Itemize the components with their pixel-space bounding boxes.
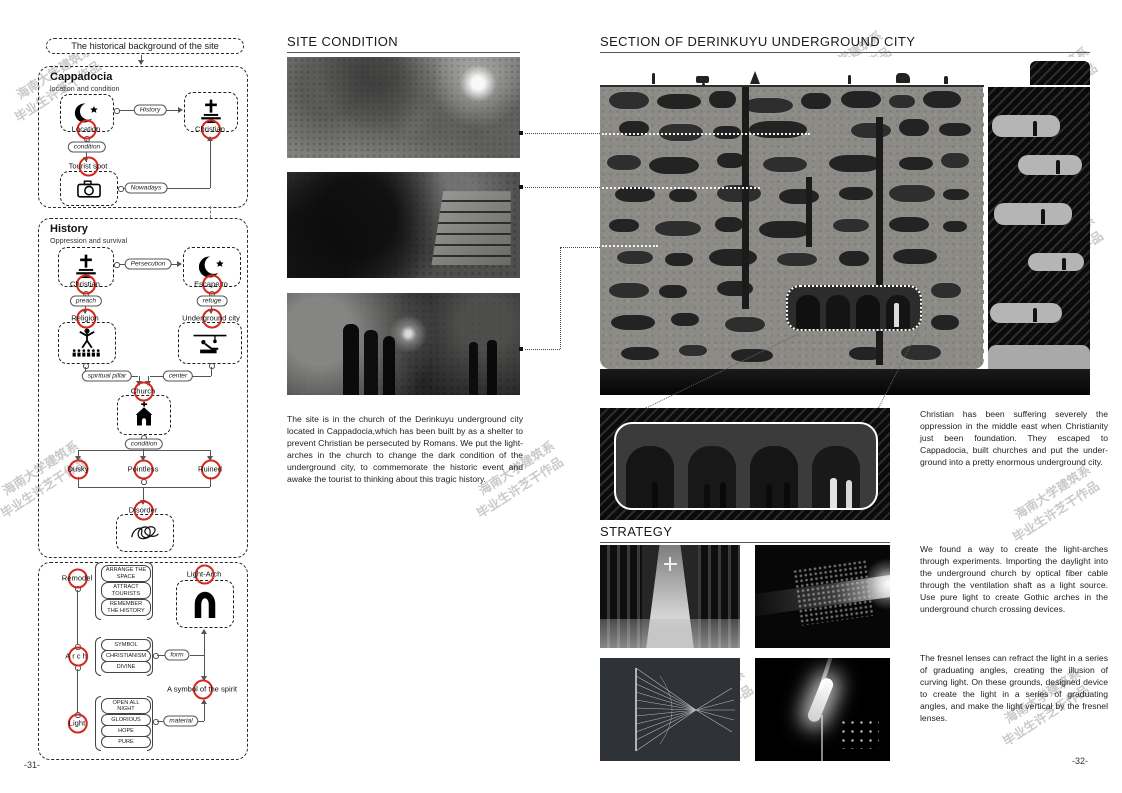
carved-chamber: [888, 216, 930, 233]
carved-chamber: [832, 218, 870, 233]
node-remodel: Remodel: [62, 574, 92, 583]
arrowhead-icon: [177, 261, 185, 267]
decor: [80, 259, 92, 262]
decor: [696, 688, 732, 710]
arch-icon: [190, 588, 220, 620]
decor: [696, 76, 709, 83]
site-photo-3: [287, 293, 520, 395]
connector-line: [211, 367, 212, 376]
connector-origin-dot: [141, 479, 147, 485]
strategy-photo-lightbeam: [755, 545, 890, 648]
decor: [636, 692, 696, 710]
node-location: Location: [72, 125, 101, 134]
decor: [213, 340, 217, 344]
church-icon: [130, 401, 158, 429]
decor: [1033, 308, 1037, 322]
water: [600, 369, 1090, 395]
group-heading: Cappadocia: [50, 71, 112, 83]
node-h-christian: Christian: [70, 280, 100, 289]
decor: [1056, 160, 1060, 174]
decor: [80, 332, 94, 348]
connector-line: [602, 245, 658, 247]
connector-line: [78, 450, 210, 451]
decor: [97, 349, 100, 352]
edge-refuge: refuge: [197, 296, 228, 307]
carved-chamber: [668, 188, 698, 203]
carved-chamber: [608, 218, 640, 233]
decor: [696, 700, 734, 710]
decor: [944, 76, 948, 84]
decor: [198, 595, 212, 618]
carved-chamber: [648, 156, 700, 175]
node-symbol-of-spirit: A symbol of the spirit: [167, 685, 237, 694]
strategy-photo-church: [600, 545, 740, 648]
decor: [894, 303, 899, 327]
edge-history: History: [134, 105, 167, 116]
connector-line: [77, 669, 78, 713]
edge-persecution: Persecution: [125, 259, 172, 270]
refraction-fan-lines: [600, 658, 740, 761]
cave-stairs: [431, 191, 510, 265]
decor: [636, 710, 696, 751]
decor: [830, 478, 837, 508]
decor: [73, 349, 100, 356]
carved-chamber: [850, 122, 892, 139]
decor: [696, 710, 732, 732]
decor: [792, 559, 873, 625]
decor: [702, 83, 705, 86]
strategy-paragraph-2: The fresnel lenses can refract the light…: [920, 652, 1108, 724]
connector-line: [78, 487, 210, 488]
carved-chamber: [656, 93, 702, 110]
site-photo-1: [287, 57, 520, 158]
decor: [73, 353, 76, 357]
tourist-silhouette: [364, 330, 378, 395]
decor: [652, 482, 658, 508]
connector-line: [190, 655, 204, 656]
edge-spiritual-pillar: spiritual pillar: [82, 371, 132, 382]
decor: [92, 353, 95, 357]
decor: [652, 73, 655, 84]
carved-chamber: [606, 154, 642, 171]
carved-chamber: [940, 152, 970, 169]
carved-chamber: [938, 122, 972, 137]
list-item: PURE: [101, 736, 151, 748]
connector-line: [204, 630, 205, 680]
edge-condition: condition: [68, 142, 106, 153]
site-photo-2: [287, 172, 520, 278]
edge-condition-2: condition: [125, 439, 163, 450]
watermark: 海南大学建筑系毕业生许芝干作品: [1011, 461, 1104, 539]
edge-center: center: [163, 371, 193, 382]
carved-chamber: [708, 248, 758, 267]
decor: [205, 344, 218, 349]
carved-chamber: [838, 186, 874, 201]
decor: [636, 710, 696, 716]
list-item: ARRANGE THE SPACE: [101, 565, 151, 582]
connector-line: [210, 137, 211, 188]
carved-chamber: [776, 252, 818, 267]
decor: [826, 295, 850, 329]
node-ruined: Ruined: [198, 465, 222, 474]
decor: [84, 181, 91, 184]
node-light-arch-box: [176, 580, 234, 628]
site-condition-title: SITE CONDITION: [287, 34, 520, 53]
carved-chamber: [942, 188, 970, 201]
strategy-photo-device: [755, 658, 890, 761]
tourist-silhouette: [383, 336, 395, 395]
carved-chamber: [840, 90, 882, 109]
carved-chamber: [724, 316, 766, 333]
carved-chamber: [888, 94, 916, 109]
carved-chamber: [888, 184, 936, 203]
decor: [626, 446, 674, 508]
decor: [85, 186, 93, 194]
surface-structure: [1030, 61, 1090, 85]
decor: [704, 484, 710, 508]
decor: [141, 403, 147, 405]
decor: [82, 353, 85, 357]
highlighted-chamber: [786, 285, 922, 331]
decor: [846, 480, 852, 508]
decor: [636, 668, 735, 751]
section-title: SECTION OF DERINKUYU UNDERGROUND CITY: [600, 34, 1090, 53]
node-underground-city: Underground city: [182, 314, 240, 323]
decor: [636, 684, 696, 710]
decor: [796, 295, 820, 329]
arrowhead-icon: [178, 107, 186, 113]
portfolio-spread: 海南大学建筑系毕业生许芝干作品 海南大学建筑系毕业生许芝干作品 海南大学建筑系毕…: [0, 0, 1122, 793]
carved-chamber: [778, 188, 820, 205]
list-item: REMEMBER THE HISTORY: [101, 599, 151, 616]
strategy-diagram-fresnel: [600, 658, 740, 761]
hatched-zone-base: [988, 345, 1090, 369]
group-subheading: location and condition: [50, 84, 120, 93]
decor: [84, 328, 89, 333]
connector-line: [210, 206, 211, 218]
carved-chamber: [892, 248, 938, 265]
connector-line: [602, 187, 760, 189]
carved-chamber: [930, 314, 960, 331]
decor: [79, 269, 93, 271]
carved-chamber: [678, 344, 708, 357]
decor: [720, 482, 726, 508]
connector-line: [525, 187, 600, 188]
camera-icon: [76, 179, 102, 199]
decor: [142, 418, 146, 425]
decor: [136, 407, 153, 415]
decor: [87, 349, 90, 352]
decor: [766, 484, 772, 508]
list-item: DIVINE: [101, 661, 151, 673]
ventilation-shaft: [742, 87, 749, 309]
decor: [1033, 121, 1037, 136]
leader-anchor-dot: [519, 185, 523, 189]
decor: [132, 527, 159, 539]
node-light: Light: [69, 719, 85, 728]
decor: [688, 446, 736, 508]
node-christian: Christian: [195, 125, 225, 134]
list-item: ATTRACT TOURISTS: [101, 582, 151, 599]
carved-chamber: [898, 118, 930, 137]
list-item: OPEN ALL NIGHT: [101, 698, 151, 714]
edge-preach: preach: [70, 296, 102, 307]
edge-material: material: [163, 716, 198, 727]
decor: [73, 349, 76, 352]
decor: 海南大学建筑系: [1012, 463, 1093, 522]
leader-anchor-dot: [519, 347, 523, 351]
church-detail-drawing: [600, 408, 890, 520]
carved-chamber: [714, 216, 744, 233]
scribble-icon: [125, 520, 165, 546]
carved-chamber: [898, 156, 934, 171]
node-tourist-spot: Tourist spot: [69, 162, 108, 171]
hatched-zone-tunnel: [1018, 155, 1082, 175]
connector-line: [560, 247, 600, 248]
carved-chamber: [610, 314, 656, 331]
tourist-silhouette: [469, 342, 478, 395]
decor: [82, 349, 85, 352]
carved-chamber: [608, 91, 650, 110]
decor: [696, 710, 734, 720]
carved-chamber: [942, 220, 968, 233]
node-dusky: Dusky: [67, 465, 88, 474]
church-chamber: [614, 422, 878, 510]
node-pointless: Pointless: [128, 465, 159, 474]
decor: [839, 718, 880, 749]
decor: [205, 104, 217, 107]
page-number-left: -31-: [24, 760, 40, 770]
decor: [204, 114, 218, 116]
carved-chamber: [742, 97, 794, 114]
decor: [750, 446, 798, 508]
edge-nowadays: Nowadays: [125, 183, 168, 194]
carved-chamber: [620, 346, 660, 361]
node-religion: Religion: [71, 314, 98, 323]
hatched-zone-tunnel: [992, 115, 1060, 137]
carved-chamber: [608, 282, 650, 299]
ventilation-shaft: [806, 177, 812, 247]
underground-city-icon: [190, 329, 230, 357]
decor: [1062, 258, 1066, 271]
decor: [750, 71, 760, 84]
decor: [97, 353, 100, 357]
hatched-zone-tunnel: [994, 203, 1072, 225]
strategy-title: STRATEGY: [600, 524, 890, 543]
decor: [201, 340, 205, 344]
decor: [636, 710, 696, 724]
carved-chamber: [758, 220, 812, 239]
node-escape-to: Escape to: [194, 280, 228, 289]
carved-chamber: [800, 92, 832, 110]
connector-line: [560, 247, 561, 349]
node-arch: Arch: [65, 652, 89, 661]
group-heading: History: [50, 223, 88, 235]
carved-chamber: [708, 90, 737, 109]
decor: [600, 619, 740, 648]
carved-chamber: [748, 120, 808, 139]
tourist-silhouette: [343, 324, 359, 395]
decor: [77, 353, 80, 357]
edge-form: form: [164, 650, 189, 661]
leader-anchor-dot: [519, 131, 523, 135]
node-light-arch: Light-Arch: [187, 570, 222, 579]
carved-chamber: [616, 250, 654, 265]
decor: [821, 715, 823, 761]
decor: [210, 100, 213, 113]
decor: [200, 350, 216, 354]
history-paragraph: Christian has been suffering severely th…: [920, 408, 1108, 468]
decor: [896, 73, 910, 83]
carved-chamber: [670, 312, 700, 327]
decor: [431, 200, 510, 259]
decor: [784, 482, 790, 508]
decor: [856, 295, 880, 329]
underground-city-section-drawing: [600, 57, 1090, 395]
carved-chamber: [922, 90, 962, 109]
preacher-icon: [69, 327, 105, 359]
arrowhead-icon: [201, 626, 207, 634]
decor: 毕业生许芝干作品: [1009, 476, 1104, 546]
decor: [78, 349, 81, 352]
hatched-zone-tunnel: [990, 303, 1062, 323]
hatched-rock-zone: [988, 87, 1090, 369]
section-divider: [983, 87, 985, 369]
tourist-silhouette: [487, 340, 497, 395]
carved-chamber: [762, 156, 808, 173]
connector-line: [602, 133, 810, 135]
decor: [87, 353, 90, 357]
group-subheading: Oppression and survival: [50, 236, 127, 245]
decor: [848, 75, 851, 84]
carved-chamber: [930, 282, 962, 299]
flowchart-title: The historical background of the site: [46, 38, 244, 54]
carved-chamber: [664, 252, 694, 267]
site-condition-paragraph: The site is in the church of the Derinku…: [287, 413, 523, 485]
decor: [636, 710, 696, 732]
strategy-paragraph-1: We found a way to create the light-arche…: [920, 543, 1108, 615]
decor: [92, 349, 95, 352]
decor: [1041, 209, 1045, 224]
hatched-zone-tunnel: [1028, 253, 1084, 271]
connector-line: [77, 590, 78, 646]
carved-chamber: [828, 154, 882, 173]
decor: [636, 710, 696, 740]
connector-line: [525, 349, 560, 350]
decor: [636, 668, 696, 710]
carved-chamber: [658, 284, 688, 299]
node-disorder: Disorder: [129, 506, 158, 515]
connector-line: [525, 133, 600, 134]
page-number-right: -32-: [1072, 756, 1088, 766]
decor: [664, 563, 677, 566]
node-church: Church: [131, 387, 155, 396]
carved-chamber: [654, 220, 702, 237]
carved-chamber: [838, 250, 870, 267]
